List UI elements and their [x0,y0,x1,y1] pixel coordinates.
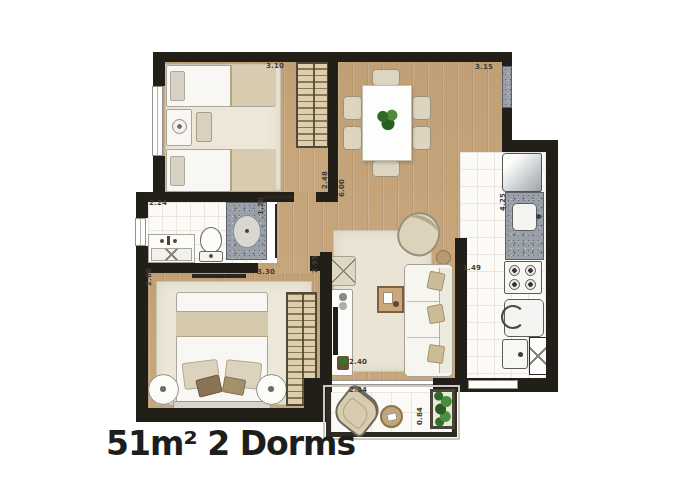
plan-title: 51m² 2 Dorms [106,424,355,464]
wall [136,263,258,273]
throw-pillow [427,344,445,364]
nightstand [166,109,192,146]
dim-kitchen-depth: 4.25 [499,190,507,214]
pillow [170,71,185,101]
dim-balcony-depth: 0.84 [416,404,424,428]
tabletop-item [383,292,393,304]
dim-bathroom-depth: 1.20 [257,194,265,218]
dim-bedroom2-depth: 2.60 [145,265,153,289]
seat-divider [407,301,439,302]
burner [509,279,520,290]
stove [504,261,542,294]
dim-bedroom1-width: 3.10 [263,62,287,70]
dining-chair [343,126,362,150]
double-bed [176,292,268,410]
service-shaft [529,337,547,375]
dim-balcony-width: 2.34 [346,386,370,394]
table-lamp [160,386,166,392]
bathroom-window [135,218,146,246]
wall [328,52,338,194]
washer-door [501,305,525,329]
table-lamp [172,119,187,134]
fridge [502,153,542,192]
dining-chair [343,96,362,120]
bathroom-vanity [148,234,195,263]
throw-pillow [427,304,446,325]
wall [320,252,332,392]
sofa [404,264,453,377]
dim-living-width: 2.40 [346,358,370,366]
tabletop-item [393,301,399,307]
dim-living-total-depth: 6.00 [338,176,346,200]
flush-button [209,254,213,258]
wall [153,52,165,86]
shower-drain [245,229,249,233]
coffee-table [377,286,404,313]
speaker [339,293,347,301]
dining-window-sill [502,66,512,108]
toilet [199,227,223,263]
bed-runner [176,311,268,337]
wall [455,238,467,380]
accent-pillow [222,376,247,396]
plant-centerpiece [375,108,401,132]
faucet-handle [173,239,177,243]
burner [509,265,520,276]
bedroom1-window [152,86,163,156]
pillow [170,156,185,186]
single-bed-2 [166,149,276,192]
kitchen-counter [505,192,544,260]
round-nightstand [148,374,179,405]
dining-chair [372,160,400,177]
vanity-cabinet [151,248,192,261]
heater-knob [518,352,523,357]
dim-bedroom1-depth: 2.48 [321,168,329,192]
toilet-bowl [200,227,222,253]
dim-living-dining-width: 3.15 [472,63,496,71]
dining-chair [372,69,400,86]
floor-plan: 3.10 3.15 2.48 6.00 2.24 1.20 4.25 1.49 … [0,0,700,500]
faucet [167,236,170,245]
bedroom1-door-leaf [264,195,294,199]
wall [136,408,332,422]
kitchen-window [468,380,518,389]
blanket [230,65,276,106]
speaker [339,302,347,310]
wall [546,140,558,392]
bedroom2-door-leaf [192,274,246,278]
water-heater [502,339,528,369]
dim-bedroom2-inner-depth: 2.95 [311,252,319,276]
blanket [230,149,276,191]
bathroom-door-leaf [275,204,277,258]
wall [153,156,165,194]
dim-bedroom2-width: 3.30 [254,268,278,276]
side-table [436,250,451,265]
tv [333,307,338,355]
faucet-handle [160,239,164,243]
single-bed-1 [166,65,276,107]
table-lamp [268,386,274,392]
dim-kitchen-width: 1.49 [460,264,484,272]
planter [430,389,455,429]
burner [525,265,536,276]
magazine [386,412,397,422]
dim-bathroom-width: 2.24 [146,199,170,207]
faucet [536,214,541,219]
burner [525,279,536,290]
seat-divider [407,337,439,338]
kitchen-sink [512,203,537,231]
dining-chair [412,126,431,150]
dining-chair [412,96,431,120]
wall [502,52,512,66]
bedroom1-bench [196,112,212,142]
washing-machine [504,299,544,337]
pouf [331,256,356,286]
balcony-round-table [380,405,403,428]
round-nightstand [256,374,287,405]
bedroom1-wardrobe [296,62,329,148]
